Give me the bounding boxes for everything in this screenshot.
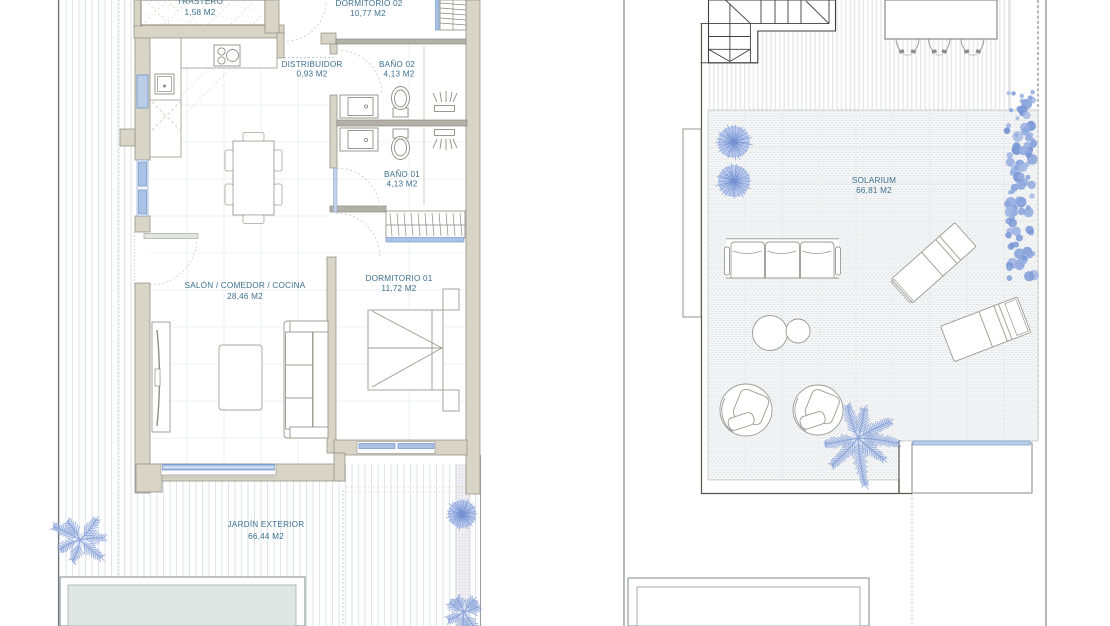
svg-text:SOLARIUM: SOLARIUM (852, 176, 896, 185)
svg-text:SALÓN / COMEDOR / COCINA: SALÓN / COMEDOR / COCINA (185, 280, 306, 290)
svg-text:BAÑO 01: BAÑO 01 (384, 169, 420, 179)
svg-text:JARDÍN EXTERIOR: JARDÍN EXTERIOR (228, 519, 305, 529)
svg-text:1,58 M2: 1,58 M2 (185, 8, 216, 17)
svg-text:BAÑO 02: BAÑO 02 (379, 59, 415, 69)
svg-text:DORMITORIO 02: DORMITORIO 02 (335, 0, 402, 8)
svg-text:66,81 M2: 66,81 M2 (856, 186, 892, 195)
svg-text:4,13 M2: 4,13 M2 (384, 70, 415, 79)
svg-text:4,13 M2: 4,13 M2 (387, 180, 418, 189)
svg-text:DORMITORIO 01: DORMITORIO 01 (365, 274, 432, 283)
svg-text:28,46 M2: 28,46 M2 (227, 292, 263, 301)
svg-text:10,77 M2: 10,77 M2 (350, 9, 386, 18)
svg-text:DISTRIBUIDOR: DISTRIBUIDOR (281, 60, 342, 69)
svg-text:TRASTERO: TRASTERO (177, 0, 223, 6)
svg-text:11,72 M2: 11,72 M2 (381, 284, 416, 293)
svg-text:66,44 M2: 66,44 M2 (248, 532, 284, 541)
svg-text:0,93 M2: 0,93 M2 (297, 70, 328, 79)
